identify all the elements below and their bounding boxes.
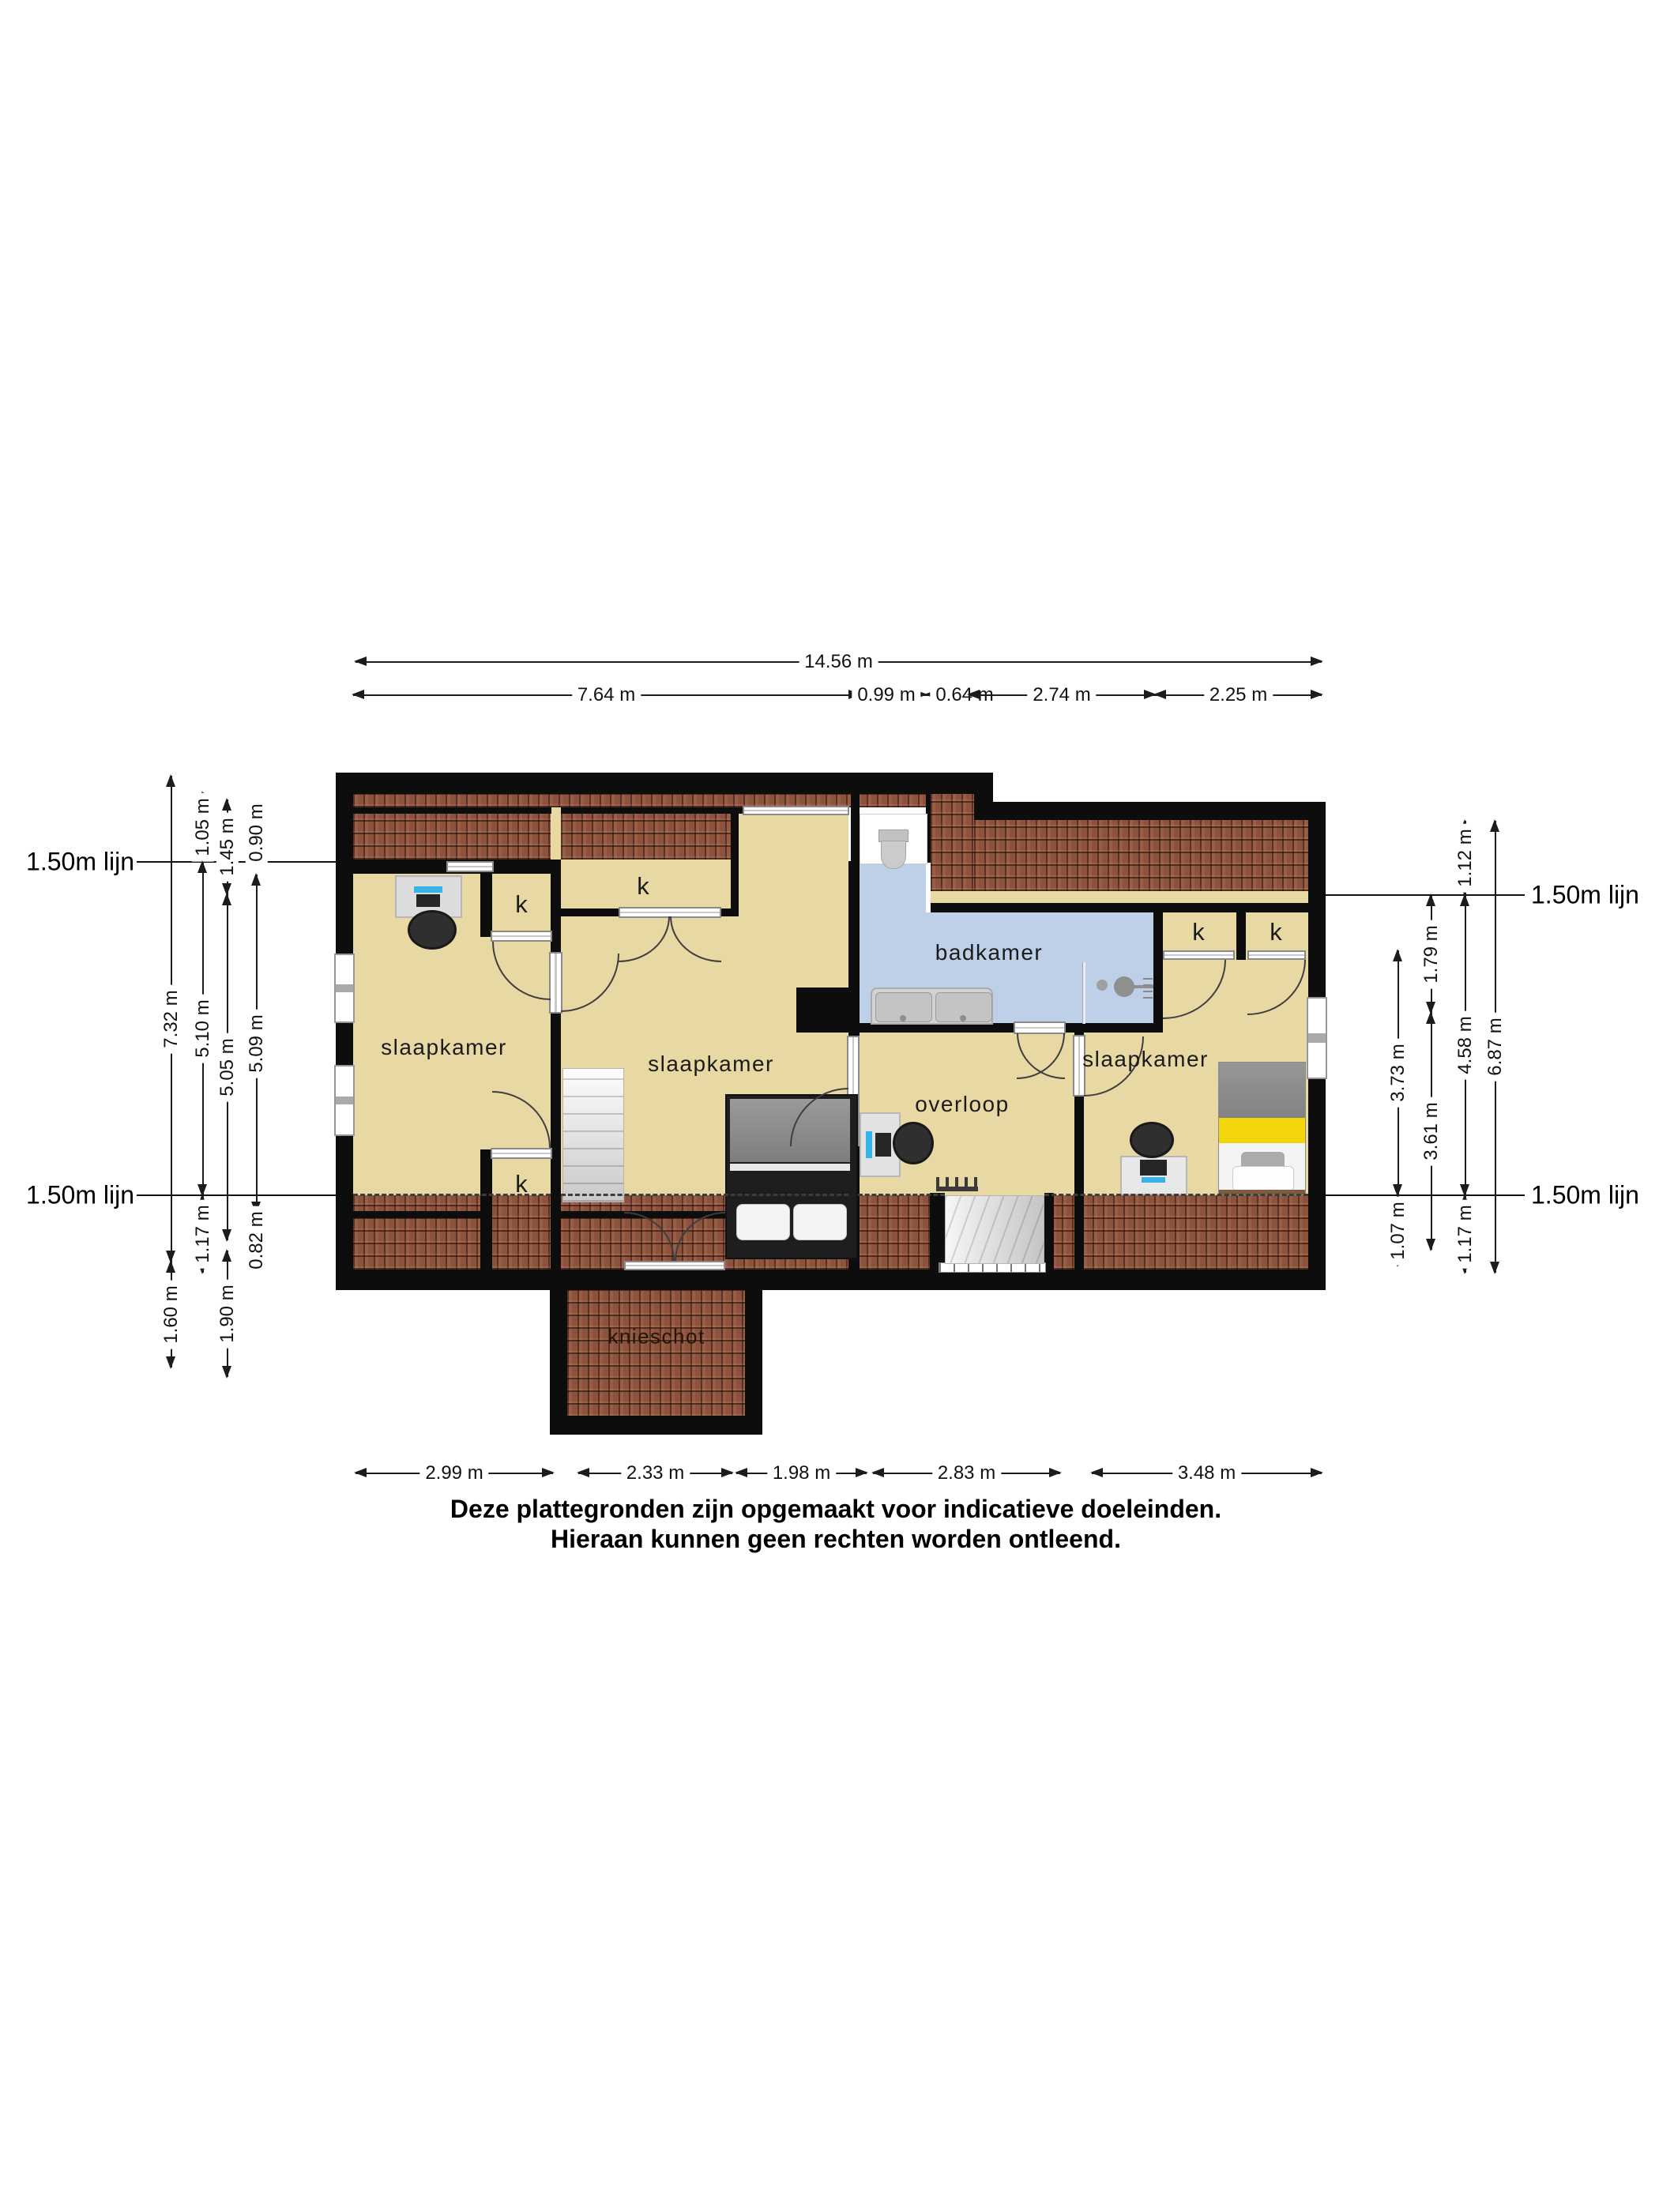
wall-top-right <box>993 802 1326 820</box>
dimension: 0.82 m <box>256 1213 258 1267</box>
dimension: 1.79 m <box>1431 895 1432 1013</box>
dimension-arrow <box>222 893 231 905</box>
shower-glass <box>1082 962 1085 1024</box>
roof-band-middle-closet <box>561 814 731 860</box>
roof-band-left-bedroom <box>353 814 551 860</box>
dimension-arrow <box>166 1260 175 1273</box>
dimension-arrow <box>222 1249 231 1262</box>
dimension-arrow <box>352 690 364 699</box>
dimension: 14.56 m <box>355 661 1322 663</box>
dimension-label: 1.98 m <box>767 1462 836 1484</box>
dimension-arrow <box>1153 690 1166 699</box>
dimension: 3.48 m <box>1092 1473 1322 1474</box>
dimension-arrow <box>1460 893 1469 906</box>
floor-plan: slaapkamer slaapkamer slaapkamer badkame… <box>0 0 1659 2212</box>
wall-closet-middle-bottom-a <box>555 908 619 916</box>
office-chair-left-bedroom <box>408 910 457 950</box>
dimension-arrow <box>1311 690 1323 699</box>
dimension-arrow <box>354 656 367 666</box>
roof-area-bathroom-high <box>931 792 974 891</box>
dimension: 1.90 m <box>227 1251 228 1377</box>
dimension-label: 1.90 m <box>216 1279 239 1348</box>
office-chair-right-bedroom <box>1130 1122 1174 1158</box>
dimension-label: 2.25 m <box>1204 684 1273 706</box>
dimension: 7.64 m <box>353 694 860 696</box>
roof-area-top-right <box>974 820 1308 891</box>
wall-bottom <box>336 1270 1326 1290</box>
dimension-label: 7.64 m <box>572 684 641 706</box>
dimension-arrow <box>166 1356 175 1369</box>
dimension-label: 5.09 m <box>246 1009 268 1078</box>
door-threshold-bathroom <box>1014 1021 1066 1034</box>
monitor-overloop-screen <box>875 1133 891 1157</box>
wall-roofline-b <box>561 807 743 814</box>
dimension-arrow <box>1426 893 1435 906</box>
dimension-label: 2.99 m <box>419 1462 488 1484</box>
dimension: 0.99 m <box>860 694 926 696</box>
room-label-overloop: overloop <box>915 1092 1009 1117</box>
dimension: 7.32 m <box>171 776 172 1262</box>
dimension-arrow <box>1049 1468 1062 1477</box>
single-bed <box>1218 1062 1306 1195</box>
dimension-arrow <box>721 1468 734 1477</box>
dimension: 3.73 m <box>1398 950 1399 1195</box>
wall-bathroom-roofline <box>931 903 1308 912</box>
dimension: 1.17 m <box>202 1195 204 1273</box>
closet-label-middle: k <box>637 872 649 901</box>
shower-control <box>1097 980 1108 991</box>
window-left-2 <box>334 1065 355 1136</box>
single-bed-headboard <box>1219 1063 1305 1118</box>
dimension-arrow <box>354 1468 367 1477</box>
toilet-bowl <box>881 841 906 869</box>
dimension: 1.45 m <box>227 799 228 894</box>
monitor-right-screen <box>1140 1160 1167 1176</box>
room-label-bedroom-left: slaapkamer <box>381 1035 507 1060</box>
office-chair-overloop <box>893 1122 934 1164</box>
window-left-1 <box>334 954 355 1023</box>
window-right <box>1307 997 1327 1079</box>
dimension: 2.33 m <box>578 1473 732 1474</box>
wall-closet-left-bottom <box>480 1149 492 1270</box>
wall-closet-right-mid <box>1236 912 1246 960</box>
dimension: 1.60 m <box>171 1262 172 1367</box>
dimension-arrow <box>1311 1468 1323 1477</box>
wall-stair-stub-left <box>930 1193 945 1270</box>
dimension-arrow <box>1426 1011 1435 1024</box>
dimension-label: 2.74 m <box>1027 684 1096 706</box>
closet-label-right-2: k <box>1270 918 1282 946</box>
wall-top-left <box>336 773 993 794</box>
coat-rack <box>936 1187 978 1191</box>
closet-right-1-threshold <box>1163 950 1235 960</box>
dimension-label: 3.73 m <box>1387 1038 1409 1107</box>
roof-strip-top-thin <box>353 792 926 807</box>
height-line-label-right-upper: 1.50m lijn <box>1531 881 1639 910</box>
dimension-label: 14.56 m <box>799 651 878 673</box>
dimension-arrow <box>871 1468 884 1477</box>
dimension: 2.99 m <box>355 1473 553 1474</box>
dimension-arrow <box>1426 1239 1435 1251</box>
dashed-height-line-3 <box>858 1194 945 1196</box>
dimension-label: 1.17 m <box>192 1199 214 1268</box>
wall-nook-left <box>851 773 860 861</box>
dimension: 2.25 m <box>1155 694 1322 696</box>
dimension-arrow <box>967 690 980 699</box>
dimension: 1.98 m <box>736 1473 867 1474</box>
dimension-arrow <box>735 1468 747 1477</box>
dimension: 5.09 m <box>256 875 258 1213</box>
dimension: 5.05 m <box>227 894 228 1240</box>
monitor-overloop-blue <box>866 1131 872 1158</box>
shower-head <box>1114 976 1134 997</box>
single-bed-pillow-white <box>1232 1166 1294 1191</box>
dimension-label: 2.83 m <box>932 1462 1001 1484</box>
dimension-arrow <box>222 1366 231 1379</box>
dimension-arrow <box>197 860 207 873</box>
dimension-arrow <box>1490 1262 1499 1274</box>
dimension-label: 1.07 m <box>1387 1196 1409 1265</box>
wall-knieschot-right <box>745 1270 762 1435</box>
dimension-arrow <box>856 1468 868 1477</box>
dimension-label: 0.90 m <box>246 798 268 867</box>
staircase-middle-bedroom <box>562 1068 624 1202</box>
dimension-arrow <box>542 1468 555 1477</box>
dimension: 2.74 m <box>969 694 1155 696</box>
dimension-label: 1.17 m <box>1454 1199 1477 1268</box>
dimension-arrow <box>1090 1468 1103 1477</box>
dimension-label: 1.12 m <box>1454 823 1477 892</box>
dimension-label: 2.33 m <box>621 1462 690 1484</box>
faucet-1 <box>900 1015 906 1021</box>
dimension-label: 7.32 m <box>160 984 182 1053</box>
wall-roofline-a <box>353 807 551 814</box>
disclaimer-line-2: Hieraan kunnen geen rechten worden ontle… <box>551 1525 1121 1554</box>
dimension-arrow <box>251 873 261 886</box>
closet-left-bottom-door-threshold <box>491 1148 552 1159</box>
monitor-screen-left <box>416 894 440 907</box>
dimension: 5.10 m <box>202 862 204 1195</box>
wall-closet-left-top <box>480 874 492 937</box>
staircase-main <box>945 1195 1044 1264</box>
dimension-label: 1.60 m <box>160 1280 182 1349</box>
dimension: 4.58 m <box>1465 895 1466 1195</box>
roof-hatch-left <box>446 861 494 872</box>
dimension-arrow <box>1490 819 1499 832</box>
bed-pillow-2 <box>793 1204 847 1240</box>
wall-bathroom-right <box>1153 903 1163 1033</box>
wall-knieschot-left <box>550 1270 567 1435</box>
monitor-right-blue <box>1142 1177 1165 1183</box>
dimension-label: 0.99 m <box>852 684 920 706</box>
bed-sheet-fold <box>730 1164 850 1171</box>
height-line-label-right-lower: 1.50m lijn <box>1531 1181 1639 1210</box>
dashed-height-line-4 <box>1044 1194 1308 1196</box>
room-label-bedroom-middle: slaapkamer <box>648 1051 774 1077</box>
dimension-arrow <box>1393 949 1402 961</box>
knieschot-door-threshold <box>624 1261 725 1270</box>
closet-left-top-door-threshold <box>491 931 552 942</box>
dimension: 1.17 m <box>1465 1195 1466 1273</box>
dimension-arrow <box>1311 656 1323 666</box>
faucet-2 <box>960 1015 966 1021</box>
dimension: 3.61 m <box>1431 1013 1432 1250</box>
closet-label-right-1: k <box>1192 918 1205 946</box>
dimension-label: 3.48 m <box>1172 1462 1241 1484</box>
disclaimer-line-1: Deze plattegronden zijn opgemaakt voor i… <box>450 1495 1221 1524</box>
dimension: 2.83 m <box>873 1473 1060 1474</box>
height-line-left-lower <box>137 1194 336 1196</box>
dimension-label: 6.87 m <box>1484 1012 1507 1081</box>
dimension: 1.12 m <box>1465 821 1466 895</box>
dimension: 0.64 m <box>926 694 969 696</box>
dimension: 1.07 m <box>1398 1195 1399 1266</box>
dashed-height-line-2 <box>561 1194 848 1196</box>
dimension: 6.87 m <box>1495 821 1496 1273</box>
closet-label-left-bottom: k <box>515 1170 528 1198</box>
room-label-knieschot: knieschot <box>608 1325 705 1349</box>
roof-window-middle <box>743 806 849 815</box>
shower-spray <box>1143 978 1153 999</box>
dimension-arrow <box>222 798 231 811</box>
wall-closet-middle-bottom-b <box>721 908 739 916</box>
height-line-label-left-upper: 1.50m lijn <box>16 848 134 877</box>
wall-knieschot-bottom <box>550 1416 762 1435</box>
wall-top-step <box>974 773 993 820</box>
monitor-left-bedroom <box>414 886 442 893</box>
bed-pillow-1 <box>736 1204 790 1240</box>
dimension-arrow <box>577 1468 589 1477</box>
wall-baseline-a <box>353 1211 480 1218</box>
wall-stair-stub-right <box>1044 1193 1054 1270</box>
dimension-label: 4.58 m <box>1454 1010 1477 1079</box>
height-line-label-left-lower: 1.50m lijn <box>16 1181 134 1210</box>
single-bed-accent <box>1219 1118 1305 1143</box>
room-label-bedroom-right: slaapkamer <box>1082 1047 1209 1072</box>
dimension-label: 1.05 m <box>192 792 214 861</box>
dimension-label: 0.82 m <box>246 1206 268 1274</box>
dimension-arrow <box>166 774 175 787</box>
wall-left <box>336 773 353 1290</box>
dimension: 0.90 m <box>256 803 258 862</box>
dimension-label: 1.45 m <box>216 812 239 881</box>
dimension-label: 5.05 m <box>216 1033 239 1101</box>
dimension: 1.05 m <box>202 792 204 862</box>
dimension-label: 5.10 m <box>192 994 214 1063</box>
wall-closet-middle-right <box>731 814 739 916</box>
dimension-label: 3.61 m <box>1420 1097 1443 1165</box>
coat-rack-hooks <box>936 1177 978 1187</box>
closet-label-left-top: k <box>515 890 528 919</box>
room-label-bathroom: badkamer <box>935 940 1044 965</box>
closet-right-2-threshold <box>1247 950 1306 960</box>
dimension-arrow <box>222 1229 231 1242</box>
dimension-label: 1.79 m <box>1420 920 1443 988</box>
